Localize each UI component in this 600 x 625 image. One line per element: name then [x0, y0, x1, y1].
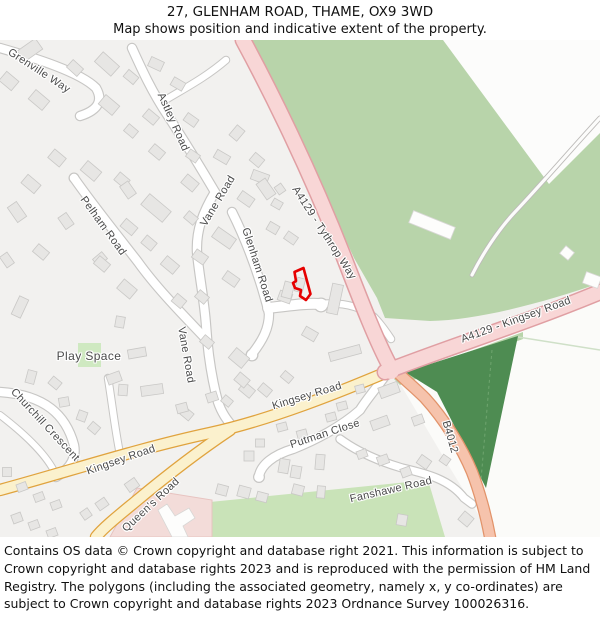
area-label-play-space: Play Space [57, 349, 122, 363]
page-subtitle: Map shows position and indicative extent… [0, 20, 600, 37]
building [3, 468, 12, 477]
building [244, 451, 254, 461]
building [355, 384, 366, 394]
building [115, 316, 126, 328]
page-title: 27, GLENHAM ROAD, THAME, OX9 3WD [0, 0, 600, 20]
building [278, 458, 290, 474]
building [58, 397, 69, 408]
building [290, 465, 302, 479]
header: 27, GLENHAM ROAD, THAME, OX9 3WD Map sho… [0, 0, 600, 40]
building [315, 454, 325, 470]
building [256, 439, 265, 447]
footer-copyright: Contains OS data © Crown copyright and d… [0, 537, 600, 613]
building [396, 514, 408, 527]
map-canvas [0, 40, 600, 537]
building [118, 384, 128, 396]
building [316, 486, 325, 499]
map: Grenville Way Astley Road Pelham Road Va… [0, 40, 600, 537]
